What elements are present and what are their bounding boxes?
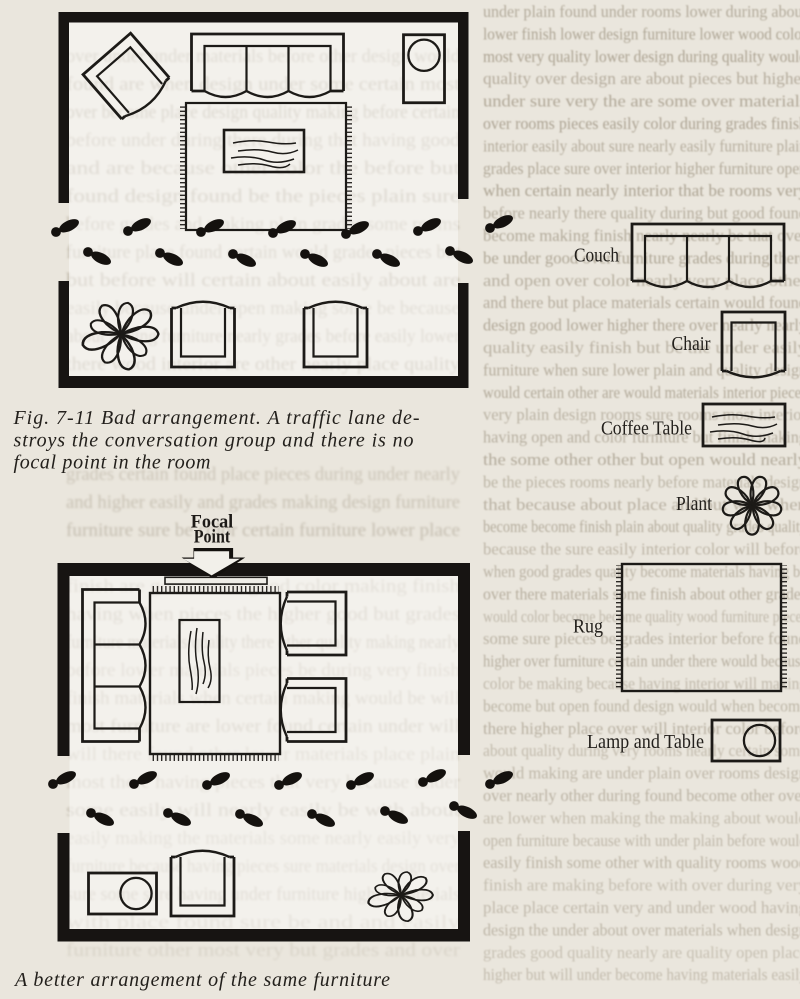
svg-text:over there materials some fini: over there materials some finish about o…: [483, 584, 800, 603]
svg-text:over rooms pieces easily color: over rooms pieces easily color during gr…: [483, 114, 800, 133]
svg-text:Coffee Table: Coffee Table: [601, 419, 692, 440]
svg-text:most very quality lower design: most very quality lower design during qu…: [483, 47, 800, 66]
svg-text:Chair: Chair: [672, 334, 711, 355]
svg-text:stroys the conversation group: stroys the conversation group and there …: [14, 430, 414, 452]
svg-text:Fig. 7-11 Bad arrangement. A t: Fig. 7-11 Bad arrangement. A traffic lan…: [13, 407, 420, 429]
svg-text:open furniture because with un: open furniture because with under plain …: [483, 831, 800, 850]
svg-text:because the sure easily interi: because the sure easily interior color w…: [483, 540, 800, 559]
svg-text:finish are making before with: finish are making before with over durin…: [483, 876, 800, 895]
svg-text:higher but will under become h: higher but will under become having mate…: [483, 965, 800, 984]
svg-text:become but open found design w: become but open found design would when …: [483, 696, 800, 715]
svg-text:grades place sure over interio: grades place sure over interior higher f…: [483, 159, 800, 178]
svg-text:become become finish plain abo: become become finish plain about quality…: [483, 517, 800, 536]
svg-text:before nearly there quality du: before nearly there quality during but g…: [483, 204, 800, 223]
svg-text:Plant: Plant: [676, 494, 713, 515]
svg-text:are lower when making the maki: are lower when making the making about w…: [483, 808, 800, 827]
svg-text:Lamp and Table: Lamp and Table: [587, 732, 704, 753]
svg-text:design good lower higher there: design good lower higher there over near…: [483, 316, 800, 335]
svg-text:and there but place materials: and there but place materials certain wo…: [483, 293, 800, 312]
svg-text:Rug: Rug: [573, 617, 603, 638]
svg-text:would color become become qual: would color become become quality wood f…: [483, 607, 800, 626]
svg-text:under sure very the are some o: under sure very the are some over materi…: [483, 92, 800, 111]
svg-text:quality over design are about: quality over design are about pieces but…: [483, 69, 800, 88]
svg-text:the some other other but open: the some other other but open would near…: [483, 450, 800, 469]
svg-text:interior easily about sure nea: interior easily about sure nearly easily…: [483, 136, 800, 155]
svg-text:lower finish lower design furn: lower finish lower design furniture lowe…: [483, 24, 800, 43]
svg-text:easily finish some other with: easily finish some other with quality ro…: [483, 853, 800, 872]
svg-text:some sure pieces be grades int: some sure pieces be grades interior befo…: [483, 629, 800, 648]
svg-text:Couch: Couch: [574, 246, 619, 267]
svg-text:Point: Point: [194, 528, 231, 548]
svg-text:under plain found under rooms: under plain found under rooms lower duri…: [483, 2, 800, 21]
svg-text:A better arrangement of the sa: A better arrangement of the same furnitu…: [13, 969, 390, 991]
svg-text:when certain nearly interior t: when certain nearly interior that be roo…: [483, 181, 800, 200]
svg-text:would making are under plain o: would making are under plain over rooms …: [483, 764, 800, 783]
svg-text:grades good quality nearly are: grades good quality nearly are quality o…: [483, 943, 800, 962]
svg-text:over nearly other during found: over nearly other during found become ot…: [483, 786, 800, 805]
svg-text:design the under about over ma: design the under about over materials wh…: [483, 920, 800, 939]
svg-text:focal point in the room: focal point in the room: [14, 452, 211, 474]
svg-text:and higher easily and grades m: and higher easily and grades making desi…: [66, 492, 460, 513]
svg-text:quality easily finish but be t: quality easily finish but be the under e…: [483, 338, 800, 357]
svg-text:place place certain very and u: place place certain very and under wood …: [483, 898, 800, 917]
svg-text:higher over furniture certain: higher over furniture certain under ther…: [483, 652, 800, 671]
svg-text:be under good over furniture g: be under good over furniture grades duri…: [483, 248, 800, 267]
svg-text:would certain other are would: would certain other are would materials …: [483, 383, 800, 402]
svg-text:furniture other most very but: furniture other most very but grades and…: [66, 940, 461, 961]
svg-text:furniture sure be color certai: furniture sure be color certain furnitur…: [66, 520, 460, 541]
